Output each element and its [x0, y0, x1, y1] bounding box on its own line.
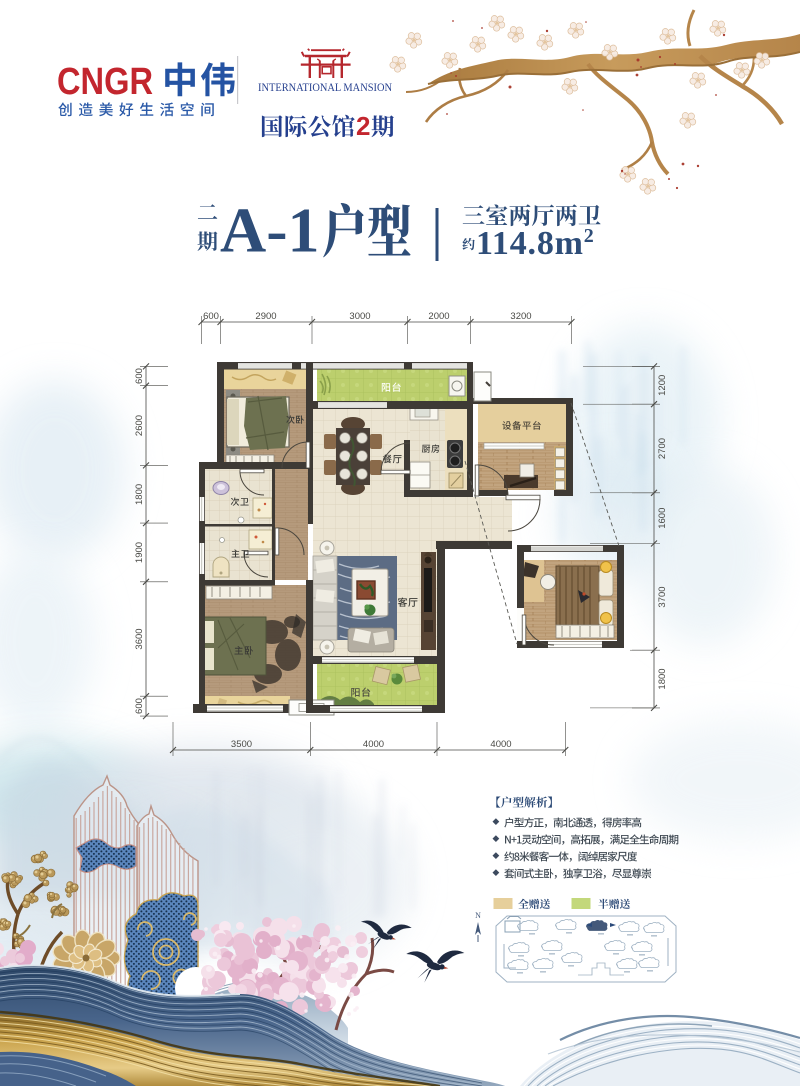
- svg-text:2600: 2600: [134, 415, 145, 436]
- svg-text:1600: 1600: [657, 508, 668, 529]
- svg-text:4000: 4000: [490, 739, 511, 750]
- svg-text:3600: 3600: [134, 628, 145, 649]
- svg-text:2000: 2000: [428, 311, 449, 322]
- svg-text:1900: 1900: [134, 542, 145, 563]
- svg-text:600: 600: [203, 311, 219, 322]
- svg-text:A-1: A-1: [220, 195, 320, 266]
- svg-text:3000: 3000: [349, 311, 370, 322]
- svg-text:2900: 2900: [255, 311, 276, 322]
- svg-text:3200: 3200: [510, 311, 531, 322]
- svg-text:3500: 3500: [231, 739, 252, 750]
- svg-text:N: N: [475, 911, 481, 920]
- svg-text:600: 600: [134, 698, 145, 714]
- svg-text:3700: 3700: [657, 586, 668, 607]
- svg-text:4000: 4000: [363, 739, 384, 750]
- svg-text:1800: 1800: [134, 484, 145, 505]
- svg-text:114.8m2: 114.8m2: [476, 225, 595, 262]
- svg-text:1200: 1200: [657, 375, 668, 396]
- svg-text:CNGR: CNGR: [57, 61, 153, 103]
- svg-text:1800: 1800: [657, 668, 668, 689]
- svg-text:600: 600: [134, 368, 145, 384]
- svg-text:INTERNATIONAL MANSION: INTERNATIONAL MANSION: [258, 82, 393, 94]
- svg-text:2700: 2700: [657, 438, 668, 459]
- svg-text:2: 2: [356, 111, 370, 141]
